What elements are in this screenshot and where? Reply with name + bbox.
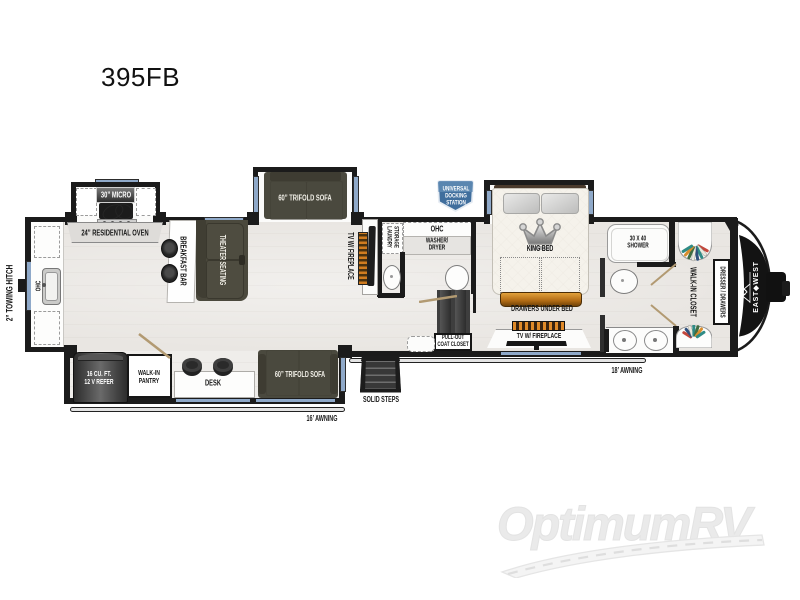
svg-text:EAST◆WEST: EAST◆WEST bbox=[753, 261, 760, 312]
